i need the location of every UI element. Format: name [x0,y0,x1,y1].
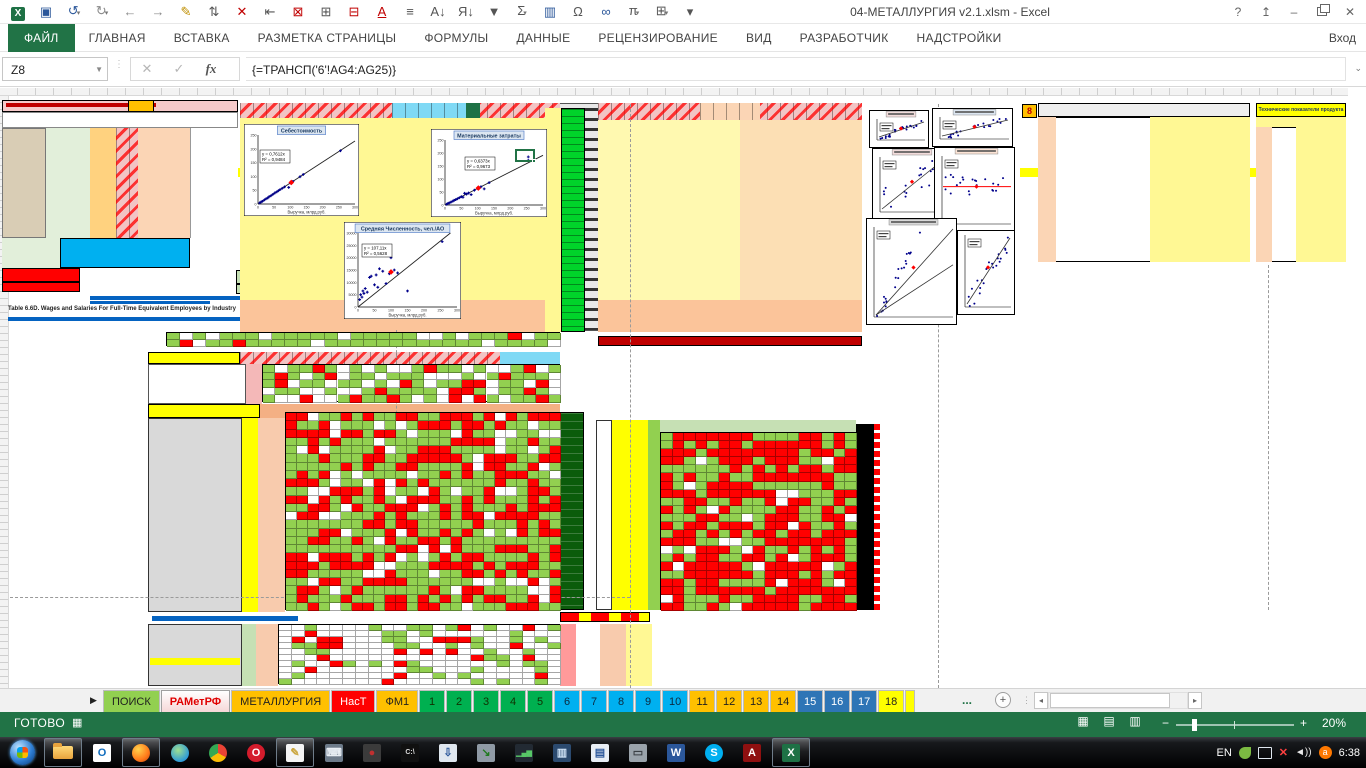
bottom-green-col [242,624,256,686]
heatmap-3 [278,624,560,684]
chrome-icon[interactable] [200,739,236,766]
worksheet-grid[interactable]: Table 6.6D. Wages and Salaries For Full-… [0,88,1348,688]
svg-text:15000: 15000 [347,269,357,273]
start-button[interactable] [2,739,42,766]
bottom-summary-white [576,624,600,686]
forward-icon[interactable]: → [144,0,172,24]
page-break-v2 [630,104,631,688]
product-table-label-col [1256,127,1272,262]
svg-text:0: 0 [257,206,259,210]
sheet-tab-14[interactable]: 14 [770,690,796,712]
no-network-icon[interactable]: ✕ [1279,746,1288,759]
system-tray: EN ✕ ◄)) a 6:38 [1217,737,1360,768]
heatmap-right-header [660,420,856,432]
bottom-labels [148,624,242,686]
taskbar-items: OO✎⌨●C:\⇩↘▁▄▆▥▤▭WSAX [2,737,812,768]
taskbar: OO✎⌨●C:\⇩↘▁▄▆▥▤▭WSAX EN ✕ ◄)) a 6:38 [0,737,1366,768]
svg-text:250: 250 [336,206,342,210]
left-table-label-col [2,128,46,238]
svg-text:5000: 5000 [349,293,357,297]
kband-labels [148,364,246,404]
bottom-pink-col [256,624,278,686]
svg-text:y = 0,7612x: y = 0,7612x [262,152,286,157]
kband-header-cyan [500,352,560,364]
clock[interactable]: 6:38 [1339,747,1360,759]
svg-text:200: 200 [251,147,257,151]
svg-text:R² = 0,5628: R² = 0,5628 [364,251,388,256]
omega-icon[interactable]: Ω [564,0,592,24]
view-shortcuts: ▦▤▥ [1070,712,1148,731]
mid-table-dark-red-band [598,336,862,346]
left-table-col-f [2,238,60,268]
heatmap-left-summary-col [560,412,584,610]
ribbon-tab-файл[interactable]: ФАЙЛ [8,24,75,52]
svg-text:Себестоимость: Себестоимость [281,127,323,134]
ready-indicator: ГОТОВО [14,716,65,730]
ribbon-tab-данные[interactable]: ДАННЫЕ [502,24,584,52]
svg-text:150: 150 [251,161,257,165]
quick-access-toolbar: X▣↺▾↻▾←→✎⇅✕⇤⊠⊞⊟A≡А↓Я↓▼Σ▾▥Ω∞π▾⊞▾▾ [4,0,704,24]
ribbon-tabs: ФАЙЛГЛАВНАЯВСТАВКАРАЗМЕТКА СТРАНИЦЫФОРМУ… [8,24,1016,52]
svg-text:R² = 0,9484: R² = 0,9484 [262,157,286,162]
back-icon[interactable]: ← [116,0,144,24]
save-icon[interactable]: ▣ [32,0,60,24]
svg-text:250: 250 [524,207,530,211]
svg-text:250: 250 [438,309,444,313]
left-table-subheader [2,112,238,128]
formula-bar: Z8 ▼ ⋮ ✕ ✓ fx {=ТРАНСП('6'!AG4:AG25)} ⌄ [0,53,1366,87]
heatmap-left-numcol [242,418,258,612]
left-table-header-cell [128,100,154,112]
borders-icon[interactable]: ⊞▾ [648,0,676,26]
more-sheets-label[interactable]: ... [962,693,972,707]
bottom-summary-header [560,612,650,622]
ribbon-tab-надстройки[interactable]: НАДСТРОЙКИ [902,24,1015,52]
fill-handle[interactable] [532,159,536,163]
ribbon-tab-вставка[interactable]: ВСТАВКА [160,24,244,52]
mini-chart-6[interactable] [957,230,1015,315]
sheet-tab-5[interactable]: 5 [527,690,553,712]
left-table-col-e [190,128,238,238]
zoom-level[interactable]: 20% [1322,716,1346,730]
heatmap-left-labels [148,418,242,612]
sheet-tab-металлургия[interactable]: МЕТАЛЛУРГИЯ [231,690,330,712]
zoom-in-icon[interactable]: + [1300,716,1307,730]
left-table-col-c [116,128,138,238]
heatmap-right-greencol [648,420,660,610]
svg-text:50: 50 [440,191,444,195]
sheet-tab-6[interactable]: 6 [554,690,580,712]
network-icon[interactable] [1258,747,1272,759]
opera-icon[interactable]: O [238,739,274,766]
svg-text:300: 300 [454,309,460,313]
heatmap-2 [660,432,856,610]
heatmap-right-red-sliver [874,424,880,610]
svg-text:50: 50 [253,189,257,193]
mini-chart-1[interactable] [869,110,929,148]
sheet-tab-10[interactable]: 10 [662,690,688,712]
tab-splitter[interactable]: ⋮ [1022,695,1031,706]
svg-text:y = 0,6373x: y = 0,6373x [467,159,491,164]
kband-pink-col [246,364,262,404]
hscroll-left-icon[interactable]: ◂ [1034,692,1048,709]
font-color-icon[interactable]: A [368,0,396,24]
ribbon-tab-главная[interactable]: ГЛАВНАЯ [75,24,160,52]
filter-icon[interactable]: ▼ [480,0,508,24]
heatmap-right-black-col [856,424,874,610]
ribbon-tab-row: ФАЙЛГЛАВНАЯВСТАВКАРАЗМЕТКА СТРАНИЦЫФОРМУ… [0,24,1366,52]
name-box-dropdown-icon[interactable]: ▼ [95,58,103,82]
left-table-red-row-1 [2,268,80,282]
left-table-col-d [138,128,190,238]
word-icon[interactable]: W [658,739,694,766]
volume-icon[interactable]: ◄)) [1295,747,1312,758]
keyboard-icon[interactable]: ⌨ [316,739,352,766]
green-total-column [561,108,585,332]
formula-input[interactable]: {=ТРАНСП('6'!AG4:AG25)} [246,57,1346,81]
acrobat-icon[interactable]: A [734,739,770,766]
svg-text:100: 100 [438,178,444,182]
sheet-tab-bar: ▶ ПОИСКРАМетРФМЕТАЛЛУРГИЯНасТФМ112345678… [0,688,1366,712]
sheet-tab-partial[interactable] [905,690,915,712]
delete-table-icon[interactable]: ⊟ [340,0,368,24]
right-table-yellow-cols [1150,117,1250,262]
delete-cells-icon[interactable]: ✕ [228,0,256,24]
right-table-label-col [1038,117,1056,262]
cmd-icon[interactable]: C:\ [392,739,428,766]
product-table-title: Технические показатели продукта [1256,103,1346,117]
ribbon-display-options-icon[interactable]: ↥ [1252,1,1280,23]
monitor-chart-icon[interactable]: ▁▄▆ [506,739,542,766]
firefox-icon[interactable] [122,738,160,767]
band-header-cyan [392,103,472,118]
excel-window: X▣↺▾↻▾←→✎⇅✕⇤⊠⊞⊟A≡А↓Я↓▼Σ▾▥Ω∞π▾⊞▾▾ 04-МЕТА… [0,0,1366,768]
tab-scroll-icon[interactable]: ▶ [90,695,97,706]
bottom-section-link-header[interactable] [152,616,298,621]
page-break-view-icon[interactable]: ▥ [1122,712,1148,731]
mini-chart-2[interactable] [932,108,1013,147]
left-table-cyan-block [60,238,190,268]
heatmap-4 [262,364,560,402]
band-header-green-cell [466,103,480,118]
svg-text:50: 50 [272,206,276,210]
cancel-icon[interactable]: ✕ [131,61,163,77]
insert-function-icon[interactable]: fx [195,61,227,77]
device-app-icon[interactable]: ● [354,739,390,766]
outlook-icon[interactable]: O [84,739,120,766]
mid-table-header-peach [700,103,760,120]
sort-desc-icon[interactable]: Я↓ [452,0,480,24]
sheet-tab-поиск[interactable]: ПОИСК [103,690,160,712]
language-indicator[interactable]: EN [1217,747,1232,759]
svg-text:150: 150 [438,165,444,169]
svg-text:0: 0 [444,207,446,211]
formula-bar-collapse-icon[interactable]: ⌄ [1354,63,1362,74]
window-controls: ? ↥ – ✕ [1224,0,1364,24]
name-box-value: Z8 [11,63,25,77]
sheet-tab-7[interactable]: 7 [581,690,607,712]
svg-text:50: 50 [459,207,463,211]
mid-table-peach-cols [740,120,862,300]
doc-app-icon[interactable]: ▤ [582,739,618,766]
add-sheet-button[interactable]: + [995,692,1011,708]
restore-icon[interactable] [1308,1,1336,23]
ribbon-tab-разработчик[interactable]: РАЗРАБОТЧИК [786,24,903,52]
chart-3[interactable]: 0500010000150002000025000300000501001502… [344,222,461,319]
printer-icon[interactable]: ▭ [620,739,656,766]
sheet-tab-18[interactable]: 18 [878,690,904,712]
status-bar: ГОТОВО ▦ ▦▤▥ − + 20% [0,712,1366,737]
kband-yellow-label [148,352,240,364]
bottom-summary-pink [600,624,626,686]
formula-buttons: ✕ ✓ fx [130,57,240,81]
explorer-icon[interactable] [44,738,82,767]
heatmap-5 [166,332,560,346]
qat-customize-icon[interactable]: ▾ [676,0,704,24]
delete-rows-icon[interactable]: ⊠ [284,0,312,24]
svg-text:300: 300 [540,207,546,211]
zoom-slider-thumb[interactable] [1192,719,1197,731]
sheet-tab-11[interactable]: 11 [689,690,715,712]
leaf-icon[interactable] [1239,747,1251,759]
minimize-icon[interactable]: – [1280,1,1308,23]
enter-icon[interactable]: ✓ [163,61,195,77]
hyperlink-line-1[interactable] [90,296,240,300]
antivirus-icon[interactable]: a [1319,746,1332,759]
sheet-tab-8[interactable]: 8 [608,690,634,712]
svg-text:250: 250 [251,134,257,138]
sort-asc-icon[interactable]: А↓ [424,0,452,24]
macro-record-icon[interactable]: ▦ [72,716,82,729]
left-table-col-a [46,128,90,238]
yellow-col-strip [545,108,561,332]
sheet-tab-12[interactable]: 12 [716,690,742,712]
redo-icon[interactable]: ↻▾ [88,0,116,26]
globe-icon[interactable] [162,739,198,766]
marker-8-cell: 8 [1022,104,1037,118]
chart-1[interactable]: 050100150200250050100150200250300Себесто… [244,124,359,216]
sheet-tab-15[interactable]: 15 [797,690,823,712]
excel-icon[interactable]: X [772,738,810,767]
sheet-tab-17[interactable]: 17 [851,690,877,712]
normal-view-icon[interactable]: ▦ [1070,712,1096,731]
product-table-yellow-cols [1296,127,1346,262]
align-icon[interactable]: ≡ [396,0,424,24]
close-icon[interactable]: ✕ [1336,1,1364,23]
sheet-tab-16[interactable]: 16 [824,690,850,712]
pi-icon[interactable]: π▾ [620,0,648,26]
backup-icon[interactable]: ↘ [468,739,504,766]
svg-text:25000: 25000 [347,244,357,248]
hscroll-right-icon[interactable]: ▸ [1188,692,1202,709]
sheet-tab-2[interactable]: 2 [446,690,472,712]
horizontal-scrollbar[interactable] [1048,692,1188,709]
svg-text:50: 50 [373,309,377,313]
hscroll-thumb[interactable] [1050,693,1170,708]
undo-icon[interactable]: ↺▾ [60,0,88,26]
svg-text:0: 0 [357,309,359,313]
notepad-icon[interactable]: ✎ [276,738,314,767]
chart-2[interactable]: 050100150200250050100150200250300Материа… [431,129,547,217]
skype-icon[interactable]: S [696,739,732,766]
svg-text:R² = 0,9673: R² = 0,9673 [467,164,491,169]
sheet-tabs: ПОИСКРАМетРФМЕТАЛЛУРГИЯНасТФМ11234567891… [103,690,916,712]
right-table-header [1038,103,1250,117]
mini-chart-5[interactable] [866,218,957,325]
svg-text:100: 100 [251,175,257,179]
page-layout-view-icon[interactable]: ▤ [1096,712,1122,731]
help-icon[interactable]: ? [1224,1,1252,23]
insert-table-icon[interactable]: ⊞ [312,0,340,24]
insert-cells-icon[interactable]: ⇅ [200,0,228,24]
left-table-col-b [90,128,116,238]
bottom-summary-red [560,624,576,686]
name-box-splitter[interactable]: ⋮ [114,61,118,77]
monitor-app-icon[interactable]: ▥ [544,739,580,766]
zoom-out-icon[interactable]: − [1162,716,1169,730]
ribbon-tab-вид[interactable]: ВИД [732,24,786,52]
ribbon-tab-рецензирование[interactable]: РЕЦЕНЗИРОВАНИЕ [584,24,732,52]
active-cell-selection[interactable] [515,149,535,162]
mid-table-orange-band [598,300,862,332]
sheet-tab-раметрф[interactable]: РАМетРФ [161,690,230,712]
svg-text:300: 300 [352,206,358,210]
excel-logo[interactable]: X [4,0,32,24]
sheet-tab-13[interactable]: 13 [743,690,769,712]
svg-text:Выручка, млрд.руб.: Выручка, млрд.руб. [475,211,513,216]
svg-text:y = 107,11x: y = 107,11x [364,246,387,251]
heatmap-right-numcol [596,420,612,610]
sheet-tab-3[interactable]: 3 [473,690,499,712]
autosum-icon[interactable]: Σ▾ [508,0,536,26]
product-table-subheader [1256,117,1346,127]
column-headers[interactable] [0,88,1348,96]
sheet-tab-фм1[interactable]: ФМ1 [376,690,418,712]
svg-text:Средняя Численность, чел./АО: Средняя Численность, чел./АО [361,226,444,232]
ribbon-tab-разметка страницы[interactable]: РАЗМЕТКА СТРАНИЦЫ [244,24,411,52]
heatmap-left-pinkcol [258,418,285,612]
indent-icon[interactable]: ⇤ [256,0,284,24]
name-box[interactable]: Z8 ▼ [2,57,108,81]
svg-text:Выручка, млрд.руб.: Выручка, млрд.руб. [287,210,325,215]
sign-in-link[interactable]: Вход [1329,24,1356,52]
svg-text:Материальные затраты: Материальные затраты [457,133,521,139]
heatmap-1 [285,412,560,610]
zoom-slider-notch [1234,721,1235,729]
sheet-tab-9[interactable]: 9 [635,690,661,712]
installer-icon[interactable]: ⇩ [430,739,466,766]
svg-text:200: 200 [438,152,444,156]
bottom-label-highlight [150,658,240,665]
conditional-format-icon[interactable]: ▥ [536,0,564,24]
sheet-tab-4[interactable]: 4 [500,690,526,712]
title-bar: X▣↺▾↻▾←→✎⇅✕⇤⊠⊞⊟A≡А↓Я↓▼Σ▾▥Ω∞π▾⊞▾▾ 04-МЕТА… [0,0,1366,24]
window-title: 04-МЕТАЛЛУРГИЯ v2.1.xlsm - Excel [800,0,1100,24]
svg-text:20000: 20000 [347,256,357,260]
sheet-tab-1[interactable]: 1 [419,690,445,712]
hyperlink-line-2[interactable] [90,301,210,304]
svg-text:10000: 10000 [347,281,357,285]
heatmap-title-cell [148,404,260,418]
hyperlink-icon[interactable]: ∞ [592,0,620,24]
ribbon-tab-формулы[interactable]: ФОРМУЛЫ [410,24,502,52]
sheet-tab-наст[interactable]: НасТ [331,690,375,712]
svg-text:Выручка, млрд.руб.: Выручка, млрд.руб. [388,313,426,318]
format-painter-icon[interactable]: ✎ [172,0,200,24]
page-break-v4 [1268,265,1269,610]
left-table-red-row-2 [2,282,80,292]
svg-text:250: 250 [438,139,444,143]
